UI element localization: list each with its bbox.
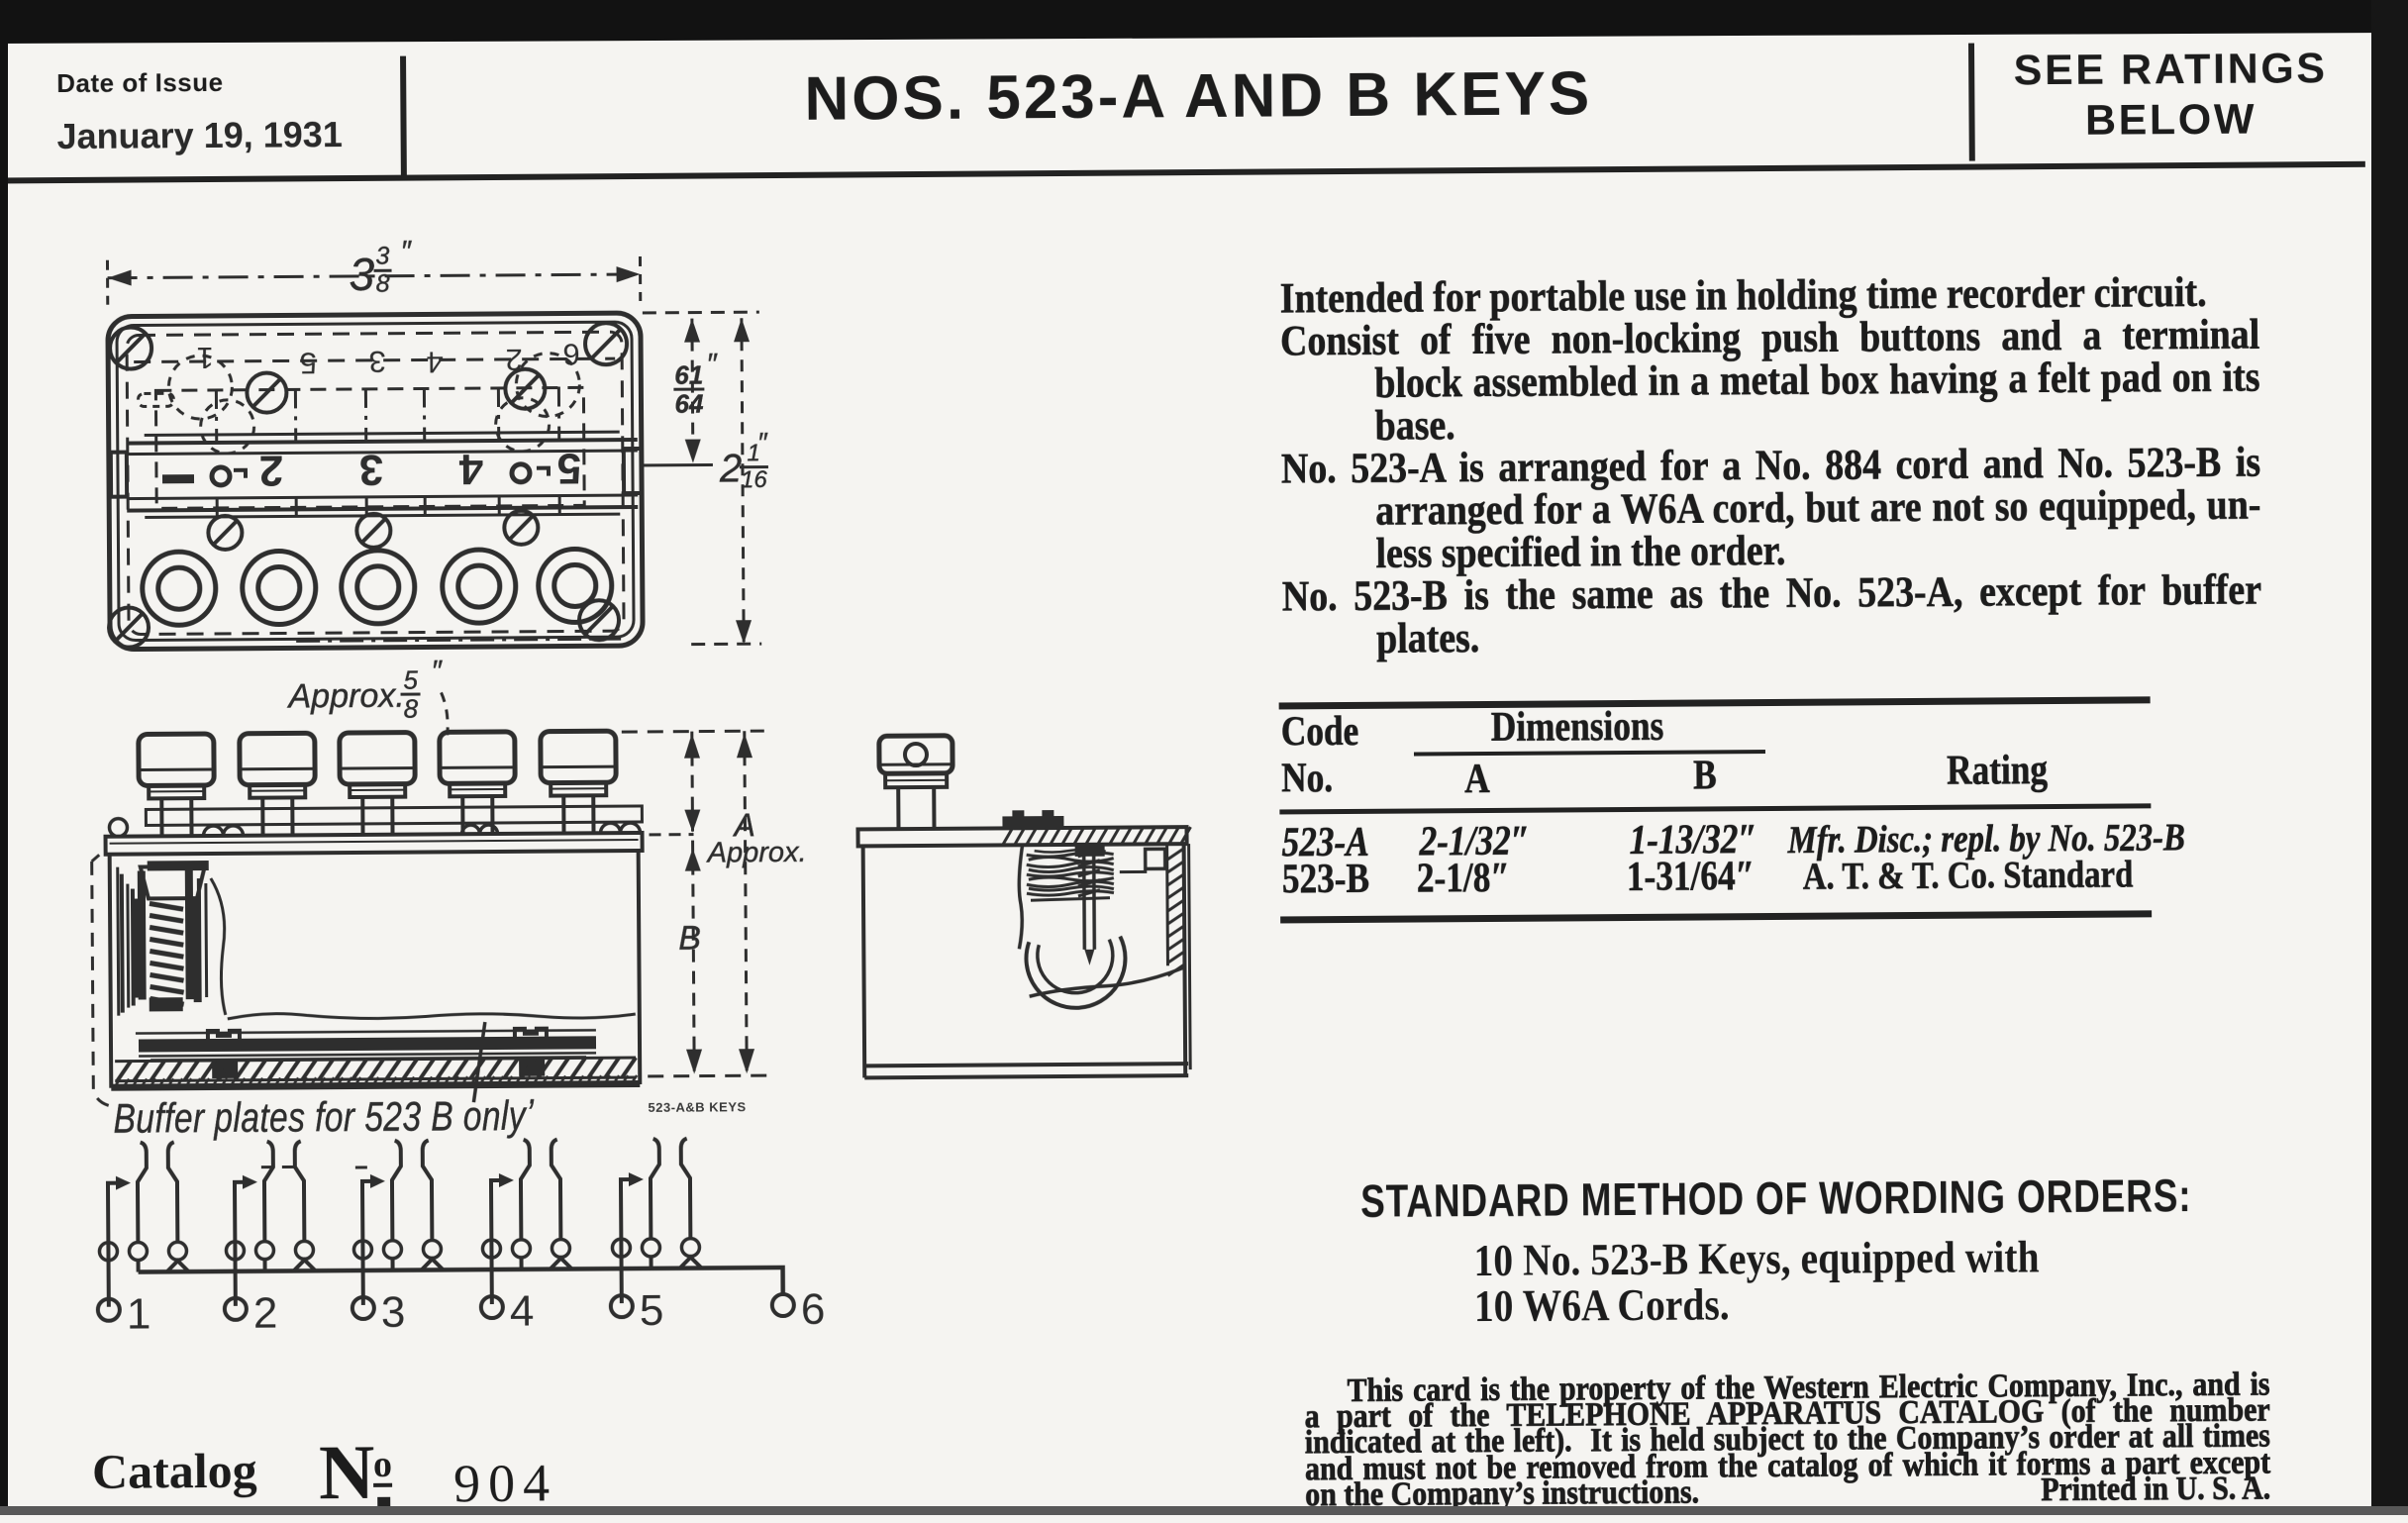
svg-text:1: 1 — [196, 341, 213, 375]
svg-text:4: 4 — [426, 345, 443, 379]
svg-text:3: 3 — [381, 1288, 406, 1337]
svg-text:4: 4 — [510, 1287, 535, 1336]
svg-text:2: 2 — [505, 343, 522, 377]
svg-text:6: 6 — [562, 337, 579, 371]
svg-text:6: 6 — [801, 1285, 826, 1334]
svg-text:1: 1 — [127, 1289, 151, 1338]
svg-text:2: 2 — [259, 446, 284, 494]
svg-text:3: 3 — [368, 345, 385, 379]
svg-text:5: 5 — [640, 1286, 664, 1335]
svg-text:5: 5 — [299, 346, 316, 380]
svg-text:5: 5 — [557, 444, 582, 492]
svg-text:3: 3 — [359, 446, 384, 494]
svg-text:2: 2 — [253, 1289, 278, 1338]
svg-text:4: 4 — [458, 445, 483, 493]
